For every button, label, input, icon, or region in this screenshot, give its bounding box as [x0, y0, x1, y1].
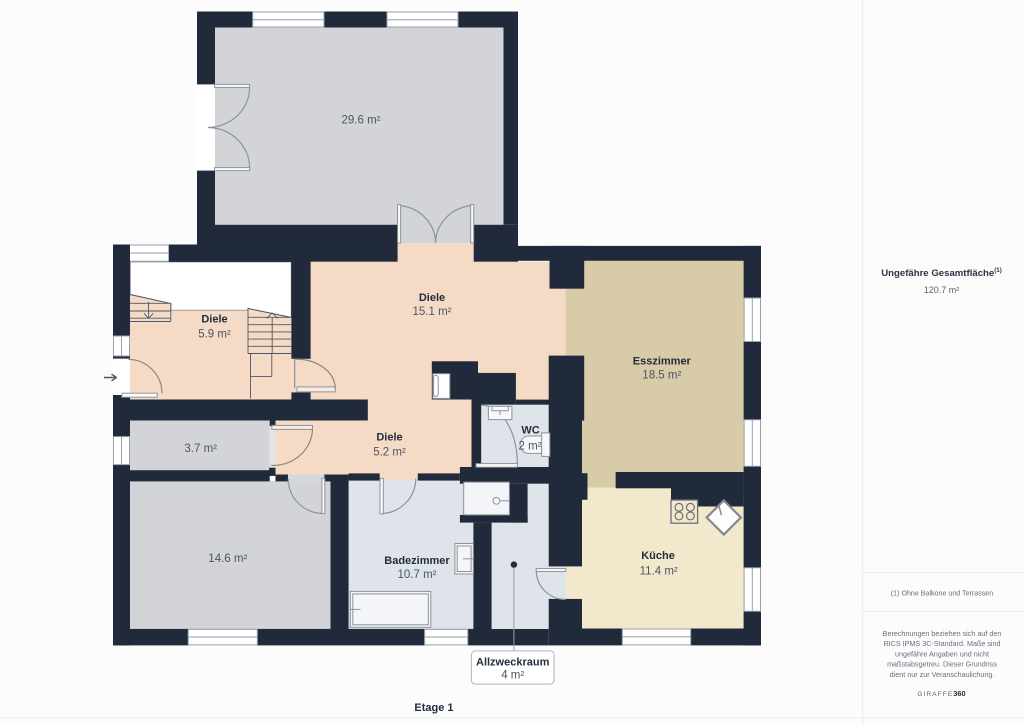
svg-text:Berechnungen beziehen sich auf: Berechnungen beziehen sich auf den — [883, 629, 1002, 638]
svg-text:2 m²: 2 m² — [519, 440, 542, 452]
svg-text:Allzweckraum: Allzweckraum — [476, 657, 550, 669]
svg-text:120.7 m²: 120.7 m² — [924, 285, 960, 295]
svg-text:Etage 1: Etage 1 — [414, 702, 453, 714]
svg-text:WC: WC — [521, 424, 539, 436]
svg-text:11.4 m²: 11.4 m² — [640, 565, 678, 577]
svg-text:5.9 m²: 5.9 m² — [198, 329, 231, 341]
svg-text:18.5 m²: 18.5 m² — [642, 369, 681, 381]
svg-text:GIRAFFE360: GIRAFFE360 — [917, 689, 965, 698]
svg-text:Esszimmer: Esszimmer — [633, 356, 692, 368]
svg-text:10.7 m²: 10.7 m² — [398, 569, 437, 581]
svg-text:14.6 m²: 14.6 m² — [208, 553, 247, 565]
svg-text:Ungefähre Gesamtfläche(1): Ungefähre Gesamtfläche(1) — [881, 267, 1002, 279]
svg-text:5.2 m²: 5.2 m² — [373, 446, 406, 458]
svg-text:Diele: Diele — [201, 313, 227, 325]
svg-text:Badezimmer: Badezimmer — [384, 555, 450, 567]
svg-text:Diele: Diele — [419, 292, 445, 304]
svg-text:maßstabsgetreu. Dieser Grundri: maßstabsgetreu. Dieser Grundriss — [887, 660, 997, 669]
svg-text:(1) Ohne Balkone und Terrassen: (1) Ohne Balkone und Terrassen — [891, 590, 993, 598]
svg-text:dient nur zur Veranschaulichun: dient nur zur Veranschaulichung. — [890, 670, 995, 679]
svg-text:Küche: Küche — [641, 550, 675, 562]
svg-text:ungefähre Angaben und nicht: ungefähre Angaben und nicht — [895, 649, 989, 658]
svg-text:4 m²: 4 m² — [501, 670, 524, 682]
svg-text:3.7 m²: 3.7 m² — [184, 443, 217, 455]
svg-text:29.6 m²: 29.6 m² — [342, 115, 381, 127]
svg-text:RICS IPMS 3C-Standard. Maße si: RICS IPMS 3C-Standard. Maße sind — [883, 639, 1000, 648]
svg-text:15.1 m²: 15.1 m² — [413, 306, 452, 318]
svg-text:Diele: Diele — [376, 431, 402, 443]
